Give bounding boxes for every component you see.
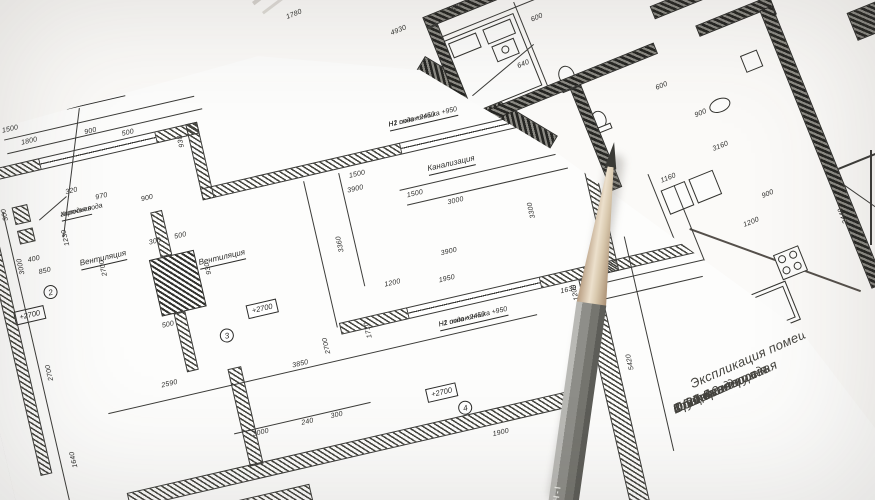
pillow-icon xyxy=(448,32,482,58)
wall xyxy=(847,0,875,41)
dim-label: 4930 xyxy=(390,24,408,37)
burner-icon xyxy=(788,249,798,259)
dim-label: 1160 xyxy=(660,172,677,184)
dim-label: 600 xyxy=(530,12,544,23)
fridge-icon xyxy=(740,49,763,72)
ceiling-height-mark: +2700 xyxy=(425,382,458,402)
dim-label: 5420 xyxy=(625,353,636,371)
wall xyxy=(200,143,402,201)
wall xyxy=(0,158,42,185)
sewer-label: Канализация xyxy=(427,154,476,175)
wall xyxy=(12,204,32,225)
pencil-graphite-tip xyxy=(604,141,620,169)
dim-label: 850 xyxy=(38,266,52,276)
dim-label: 1500 xyxy=(406,189,424,200)
dim-label: 3900 xyxy=(440,247,458,258)
pencil-brand-text: KOH-I xyxy=(549,484,562,500)
burner-icon xyxy=(781,265,791,275)
dim-label: 1950 xyxy=(438,274,456,285)
dim-label: 300 xyxy=(0,208,10,222)
wall xyxy=(339,307,410,334)
sill-note-line2: Н2 окна +2450 xyxy=(388,110,436,130)
dim-line xyxy=(400,154,556,191)
dim-label: 900 xyxy=(140,194,154,204)
dim-label: 500 xyxy=(174,231,188,241)
dim-label: 900 xyxy=(84,127,98,137)
dim-label: 1800 xyxy=(21,136,39,147)
ceiling-height-mark: +2700 xyxy=(13,305,46,325)
dim-label: 2700 xyxy=(322,337,333,355)
counter-icon xyxy=(688,170,722,204)
dim-label: 320 xyxy=(65,186,79,196)
burner-icon xyxy=(792,261,802,271)
drain-icon xyxy=(500,44,510,54)
dim-label: 600 xyxy=(655,81,669,92)
dim-label: 3160 xyxy=(712,140,730,153)
dim-label: 1500 xyxy=(348,169,366,180)
blueprint-photo: Канализация Холодная горячая вода Вентил… xyxy=(0,0,875,500)
dim-label: 1200 xyxy=(742,216,760,229)
dim-label: 3300 xyxy=(526,201,537,219)
dim-label: 3900 xyxy=(347,184,365,195)
dim-label: 1200 xyxy=(384,278,402,289)
stove-icon xyxy=(773,245,808,280)
dim-label: 3000 xyxy=(447,196,465,207)
window xyxy=(39,132,157,170)
dim-label: 240 xyxy=(301,417,315,427)
wall xyxy=(759,5,875,288)
dim-label: 900 xyxy=(761,189,775,200)
dim-label: 1640 xyxy=(69,451,80,469)
wall xyxy=(174,311,199,372)
dim-line xyxy=(108,314,537,414)
dim-label: 3360 xyxy=(335,235,346,253)
wall xyxy=(150,210,172,258)
dim-label: 1900 xyxy=(492,428,510,439)
dim-label: 400 xyxy=(27,255,41,265)
kitchen-sink-icon xyxy=(707,95,733,116)
wall xyxy=(17,227,36,244)
room-number-3: 3 xyxy=(218,327,235,344)
dim-label: 1230 xyxy=(61,229,72,247)
dim-label: 2700 xyxy=(45,364,56,382)
burner-icon xyxy=(777,254,787,264)
room-number-2: 2 xyxy=(42,284,59,301)
counter-icon xyxy=(661,181,695,215)
dim-label: 2590 xyxy=(161,379,179,390)
ceiling-height-mark: +2700 xyxy=(246,299,279,319)
dim-label: 1780 xyxy=(285,8,303,21)
dim-label: 500 xyxy=(161,320,175,330)
dim-label: 300 xyxy=(330,411,344,421)
dim-label: 970 xyxy=(95,192,109,202)
dim-line xyxy=(303,181,338,327)
dim-label: 900 xyxy=(694,108,708,119)
